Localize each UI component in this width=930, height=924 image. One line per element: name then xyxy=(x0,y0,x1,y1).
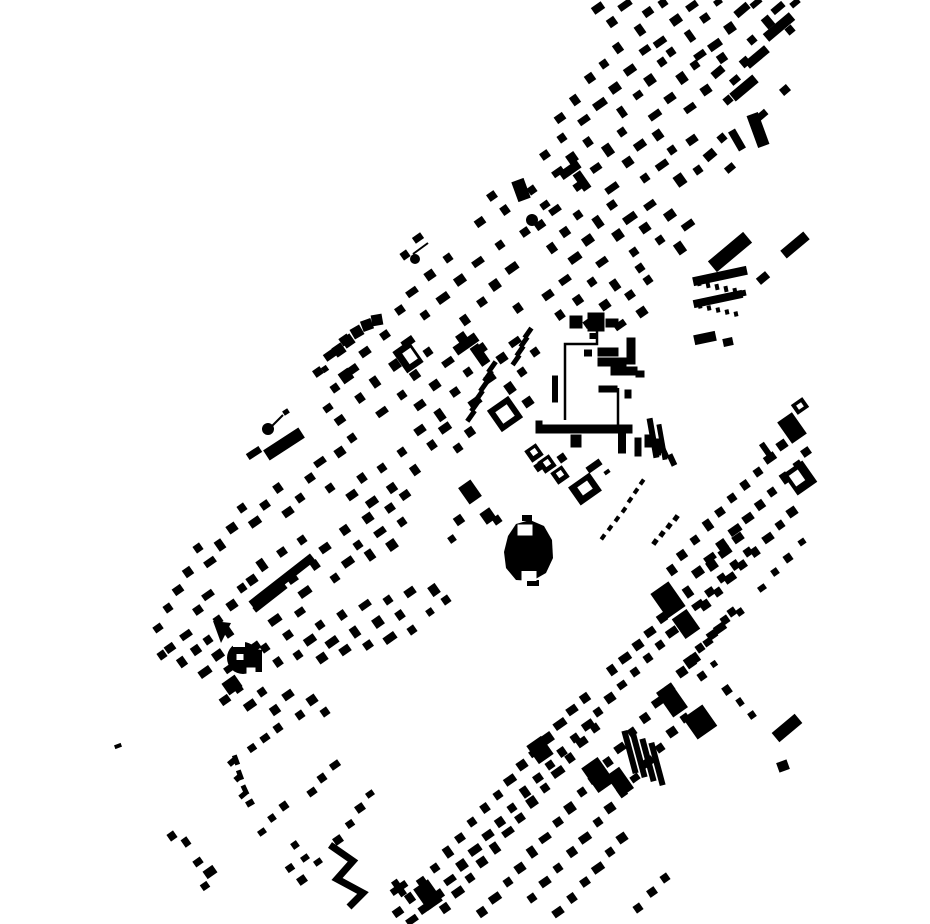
building-footprint xyxy=(246,446,262,460)
building-footprint xyxy=(643,626,657,639)
building-footprint xyxy=(458,480,482,505)
building-footprint xyxy=(577,114,591,127)
building-footprint xyxy=(665,522,673,530)
building-footprint xyxy=(152,623,163,634)
building-footprint xyxy=(453,273,467,287)
building-footprint xyxy=(699,12,711,24)
building-footprint xyxy=(329,572,340,583)
building-footprint xyxy=(345,489,359,502)
building-footprint xyxy=(449,386,461,398)
building-footprint xyxy=(488,891,502,904)
building-footprint xyxy=(296,874,308,886)
building-footprint xyxy=(579,876,591,888)
building-footprint xyxy=(716,132,727,143)
building-footprint xyxy=(471,256,485,269)
building-footprint xyxy=(675,71,689,85)
building-footprint xyxy=(726,606,737,617)
building-footprint xyxy=(245,573,258,586)
building-footprint xyxy=(800,446,812,458)
building-footprint xyxy=(192,857,203,868)
building-footprint xyxy=(382,631,397,645)
building-footprint xyxy=(598,358,627,367)
building-footprint xyxy=(172,584,185,596)
building-footprint xyxy=(714,284,719,291)
building-footprint xyxy=(504,261,519,275)
building-footprint xyxy=(475,855,488,868)
building-footprint xyxy=(643,199,657,212)
courtyard-notch xyxy=(522,571,537,581)
building-footprint xyxy=(440,594,451,605)
building-footprint xyxy=(591,215,604,229)
building-footprint xyxy=(511,178,530,202)
building-footprint xyxy=(604,181,619,195)
building-footprint xyxy=(552,862,563,873)
building-footprint xyxy=(552,376,558,403)
building-footprint xyxy=(606,664,618,677)
building-footprint xyxy=(365,789,375,799)
building-footprint xyxy=(603,691,616,704)
building-footprint xyxy=(182,566,195,579)
building-footprint xyxy=(770,1,785,15)
building-footprint xyxy=(315,651,328,664)
building-footprint xyxy=(584,72,597,85)
building-footprint xyxy=(503,773,517,786)
building-footprint xyxy=(352,539,363,550)
building-footprint xyxy=(203,865,218,879)
building-footprint xyxy=(386,482,399,495)
building-footprint xyxy=(486,190,498,202)
building-footprint xyxy=(203,556,217,569)
building-footprint xyxy=(454,832,466,844)
building-footprint xyxy=(272,482,284,494)
building-footprint xyxy=(201,589,215,602)
building-footprint xyxy=(639,712,652,725)
building-footprint xyxy=(632,90,643,101)
building-footprint xyxy=(650,581,685,618)
building-footprint xyxy=(358,599,372,612)
building-footprint xyxy=(586,276,597,287)
building-footprint xyxy=(606,319,619,328)
tower-mast xyxy=(413,243,428,254)
building-footprint xyxy=(699,83,712,96)
building-footprint xyxy=(406,624,417,635)
building-footprint xyxy=(296,534,307,545)
building-footprint xyxy=(211,648,225,662)
building-footprint xyxy=(255,558,268,572)
building-footprint xyxy=(399,489,412,501)
building-footprint xyxy=(779,84,791,96)
building-footprint xyxy=(663,208,677,222)
building-footprint xyxy=(603,469,610,476)
building-footprint xyxy=(200,881,211,891)
building-footprint xyxy=(729,74,741,86)
building-footprint xyxy=(267,613,282,627)
building-footprint xyxy=(723,21,737,35)
building-footprint xyxy=(515,758,528,771)
building-footprint xyxy=(722,337,733,347)
building-footprint xyxy=(603,801,616,814)
building-footprint xyxy=(508,336,522,349)
building-footprint xyxy=(269,704,282,717)
building-footprint xyxy=(451,885,465,898)
building-footprint xyxy=(442,252,453,263)
building-footprint xyxy=(176,656,188,669)
building-footprint xyxy=(267,813,277,823)
building-footprint xyxy=(322,403,333,414)
building-footprint xyxy=(425,607,435,617)
building-footprint xyxy=(570,316,583,329)
building-footprint xyxy=(624,289,636,301)
building-footprint xyxy=(739,479,751,491)
building-footprint xyxy=(272,656,284,668)
building-footprint xyxy=(741,512,755,525)
building-footprint xyxy=(494,816,507,829)
building-footprint xyxy=(692,164,703,175)
building-footprint xyxy=(585,459,602,474)
building-footprint xyxy=(306,787,317,798)
round-building xyxy=(410,254,420,264)
building-footprint xyxy=(642,274,653,285)
building-footprint xyxy=(576,786,587,797)
building-footprint xyxy=(294,492,305,503)
building-footprint xyxy=(617,0,632,12)
building-footprint xyxy=(616,126,627,137)
building-footprint xyxy=(556,132,567,143)
building-footprint xyxy=(318,542,332,555)
building-footprint xyxy=(474,216,487,228)
building-footprint xyxy=(369,375,382,389)
building-footprint xyxy=(684,29,697,43)
building-footprint xyxy=(665,46,676,57)
building-footprint xyxy=(405,286,419,299)
building-footprint xyxy=(478,379,490,393)
building-footprint xyxy=(683,704,718,739)
building-footprint xyxy=(539,149,551,161)
building-footprint xyxy=(336,609,348,621)
building-footprint xyxy=(598,58,609,69)
building-footprint xyxy=(646,886,658,898)
building-footprint xyxy=(512,302,524,314)
building-footprint xyxy=(114,743,122,749)
building-footprint xyxy=(466,816,477,827)
building-footprint xyxy=(552,816,564,828)
building-footprint xyxy=(669,13,683,27)
building-footprint xyxy=(747,710,757,720)
building-footprint-canvas xyxy=(0,0,930,924)
building-footprint xyxy=(488,278,502,292)
building-footprint xyxy=(572,294,585,307)
building-footprint xyxy=(329,759,341,770)
building-footprint xyxy=(285,863,296,873)
building-footprint xyxy=(673,241,687,256)
building-footprint xyxy=(429,862,440,873)
building-footprint xyxy=(396,446,407,457)
building-footprint xyxy=(693,49,707,62)
building-footprint xyxy=(162,602,173,613)
building-footprint xyxy=(556,452,567,463)
courtyard-notch xyxy=(247,668,256,675)
building-footprint xyxy=(598,348,619,357)
building-footprint xyxy=(443,874,457,887)
building-footprint xyxy=(696,670,707,681)
building-footprint xyxy=(467,843,482,857)
building-footprint xyxy=(523,327,534,340)
building-footprint xyxy=(672,514,680,522)
building-footprint xyxy=(754,499,767,512)
building-footprint xyxy=(384,502,396,514)
building-footprint xyxy=(259,733,270,744)
building-footprint xyxy=(633,138,647,151)
building-footprint xyxy=(681,218,696,231)
building-footprint xyxy=(757,583,767,593)
building-footprint xyxy=(354,392,366,404)
building-footprint xyxy=(303,633,317,646)
building-footprint xyxy=(313,857,323,867)
building-footprint xyxy=(635,438,642,457)
building-footprint xyxy=(628,246,639,257)
building-footprint xyxy=(361,511,374,524)
building-footprint xyxy=(761,532,775,545)
courtyard-notch xyxy=(233,639,245,647)
building-footprint xyxy=(566,892,578,904)
building-footprint xyxy=(766,486,777,497)
building-footprint xyxy=(394,304,406,316)
building-footprint xyxy=(746,34,757,45)
building-footprint xyxy=(607,524,614,531)
building-footprint xyxy=(349,625,362,639)
building-footprint xyxy=(413,399,427,412)
building-footprint xyxy=(643,73,657,87)
building-footprint xyxy=(225,598,238,611)
building-footprint xyxy=(422,346,433,357)
building-footprint xyxy=(423,268,436,281)
building-footprint xyxy=(447,534,457,544)
building-footprint xyxy=(707,38,723,53)
building-footprint xyxy=(247,743,258,753)
building-footprint xyxy=(438,421,452,434)
building-footprint xyxy=(225,521,238,534)
building-footprint xyxy=(419,309,430,320)
building-footprint xyxy=(666,564,678,577)
building-footprint xyxy=(667,453,678,466)
building-footprint xyxy=(780,232,809,259)
building-footprint xyxy=(598,298,611,311)
building-footprint xyxy=(362,639,374,651)
building-footprint xyxy=(618,433,626,454)
building-footprint xyxy=(782,552,793,563)
building-footprint xyxy=(476,906,489,919)
building-footprint xyxy=(710,65,725,79)
building-footprint xyxy=(756,271,770,285)
building-footprint xyxy=(606,199,618,211)
building-footprint xyxy=(192,604,204,616)
building-footprint xyxy=(329,382,340,393)
building-footprint xyxy=(723,286,728,293)
building-footprint xyxy=(334,414,347,426)
building-footprint xyxy=(704,586,716,598)
building-footprint xyxy=(492,789,503,800)
building-footprint xyxy=(433,408,446,422)
building-footprint xyxy=(716,52,729,65)
building-footprint xyxy=(441,356,455,369)
building-footprint xyxy=(777,412,807,444)
building-footprint xyxy=(316,772,327,783)
building-footprint xyxy=(272,722,283,733)
building-footprint xyxy=(459,314,471,327)
building-footprint xyxy=(604,846,615,857)
building-footprint xyxy=(595,256,609,269)
building-footprint xyxy=(294,709,305,720)
building-footprint xyxy=(559,226,572,239)
building-footprint xyxy=(305,693,318,706)
building-footprint xyxy=(292,649,303,660)
building-footprint xyxy=(499,204,511,216)
building-footprint xyxy=(638,221,651,234)
building-footprint xyxy=(428,378,441,391)
building-footprint xyxy=(219,694,232,706)
building-footprint xyxy=(591,1,605,14)
building-footprint xyxy=(627,496,634,503)
building-footprint xyxy=(519,226,531,238)
building-footprint xyxy=(655,158,670,171)
building-footprint xyxy=(476,296,488,308)
building-footprint xyxy=(726,492,737,503)
building-footprint xyxy=(563,801,577,815)
building-footprint xyxy=(481,829,495,842)
building-footprint xyxy=(519,785,532,799)
building-footprint xyxy=(744,45,770,69)
building-footprint xyxy=(666,144,677,155)
courtyard-notch xyxy=(518,525,533,536)
building-footprint xyxy=(541,289,555,302)
building-footprint xyxy=(721,684,733,696)
building-footprint xyxy=(427,583,441,597)
building-footprint xyxy=(571,435,582,448)
building-footprint xyxy=(371,314,384,327)
building-footprint xyxy=(685,134,699,147)
building-footprint xyxy=(494,239,505,250)
building-footprint xyxy=(281,689,295,702)
building-footprint xyxy=(396,389,407,400)
building-footprint xyxy=(565,704,579,717)
building-footprint xyxy=(609,278,622,292)
building-footprint xyxy=(578,831,592,844)
building-footprint xyxy=(516,366,527,377)
building-footprint xyxy=(300,853,310,863)
building-footprint xyxy=(636,371,645,378)
building-footprint xyxy=(665,725,678,738)
building-footprint xyxy=(259,499,271,511)
building-footprint xyxy=(614,515,621,522)
building-footprint xyxy=(608,81,622,95)
building-footprint xyxy=(714,506,726,518)
building-footprint xyxy=(282,408,290,415)
building-footprint xyxy=(728,128,746,151)
building-footprint xyxy=(691,565,705,579)
building-footprint xyxy=(551,906,565,919)
building-footprint xyxy=(729,559,741,571)
building-footprint xyxy=(314,619,325,630)
building-footprint xyxy=(413,879,443,911)
building-footprint xyxy=(256,686,267,697)
building-footprint xyxy=(663,92,677,105)
building-footprint xyxy=(648,108,663,121)
building-footprint xyxy=(797,538,806,547)
building-footprint xyxy=(442,845,455,859)
building-footprint xyxy=(588,313,605,332)
building-footprint xyxy=(590,333,597,339)
building-footprint xyxy=(385,538,399,552)
building-footprint xyxy=(333,445,346,458)
building-footprint xyxy=(689,534,700,545)
building-footprint xyxy=(579,692,592,705)
building-footprint xyxy=(707,305,712,311)
building-footprint xyxy=(522,515,532,521)
building-footprint xyxy=(396,516,407,527)
building-footprint xyxy=(592,706,603,717)
building-footprint xyxy=(694,642,705,653)
building-footprint xyxy=(629,666,640,677)
building-footprint xyxy=(734,311,739,317)
building-footprint xyxy=(621,155,634,168)
church-mast xyxy=(272,415,283,426)
building-footprint xyxy=(658,530,666,538)
building-footprint xyxy=(479,802,491,814)
building-footprint xyxy=(245,798,255,807)
building-footprint xyxy=(775,438,788,451)
building-footprint xyxy=(600,533,607,540)
building-footprint xyxy=(676,549,689,562)
hospital-connector-wing xyxy=(565,331,597,420)
building-footprint xyxy=(567,251,582,265)
building-footprint xyxy=(375,406,389,419)
building-footprint xyxy=(653,35,668,48)
building-footprint xyxy=(435,291,450,305)
building-footprint xyxy=(749,0,762,9)
building-footprint xyxy=(735,697,745,707)
building-footprint xyxy=(592,97,608,112)
building-footprint xyxy=(623,63,637,76)
building-footprint xyxy=(642,6,655,18)
building-footprint xyxy=(702,518,715,532)
building-footprint xyxy=(304,472,316,484)
building-footprint xyxy=(405,914,419,924)
building-footprint xyxy=(532,772,544,784)
building-footprint xyxy=(489,841,502,855)
building-footprint xyxy=(611,228,625,242)
building-footprint xyxy=(582,136,594,148)
building-footprint xyxy=(281,506,295,519)
building-footprint xyxy=(713,0,723,7)
building-footprint xyxy=(392,906,405,918)
building-footprint xyxy=(495,351,508,364)
building-footprint xyxy=(601,143,615,158)
building-footprint xyxy=(566,846,579,859)
building-footprint xyxy=(631,638,644,651)
building-footprint xyxy=(526,892,537,903)
building-footprint xyxy=(685,0,699,12)
building-footprint xyxy=(672,172,687,188)
building-footprint xyxy=(629,773,640,784)
building-footprint xyxy=(399,249,410,260)
building-footprint xyxy=(538,876,552,889)
building-footprint xyxy=(635,305,648,318)
building-footprint xyxy=(733,2,750,18)
building-footprint xyxy=(639,478,646,485)
building-footprint xyxy=(502,876,513,887)
building-footprint xyxy=(592,816,603,827)
building-footprint xyxy=(634,23,647,37)
